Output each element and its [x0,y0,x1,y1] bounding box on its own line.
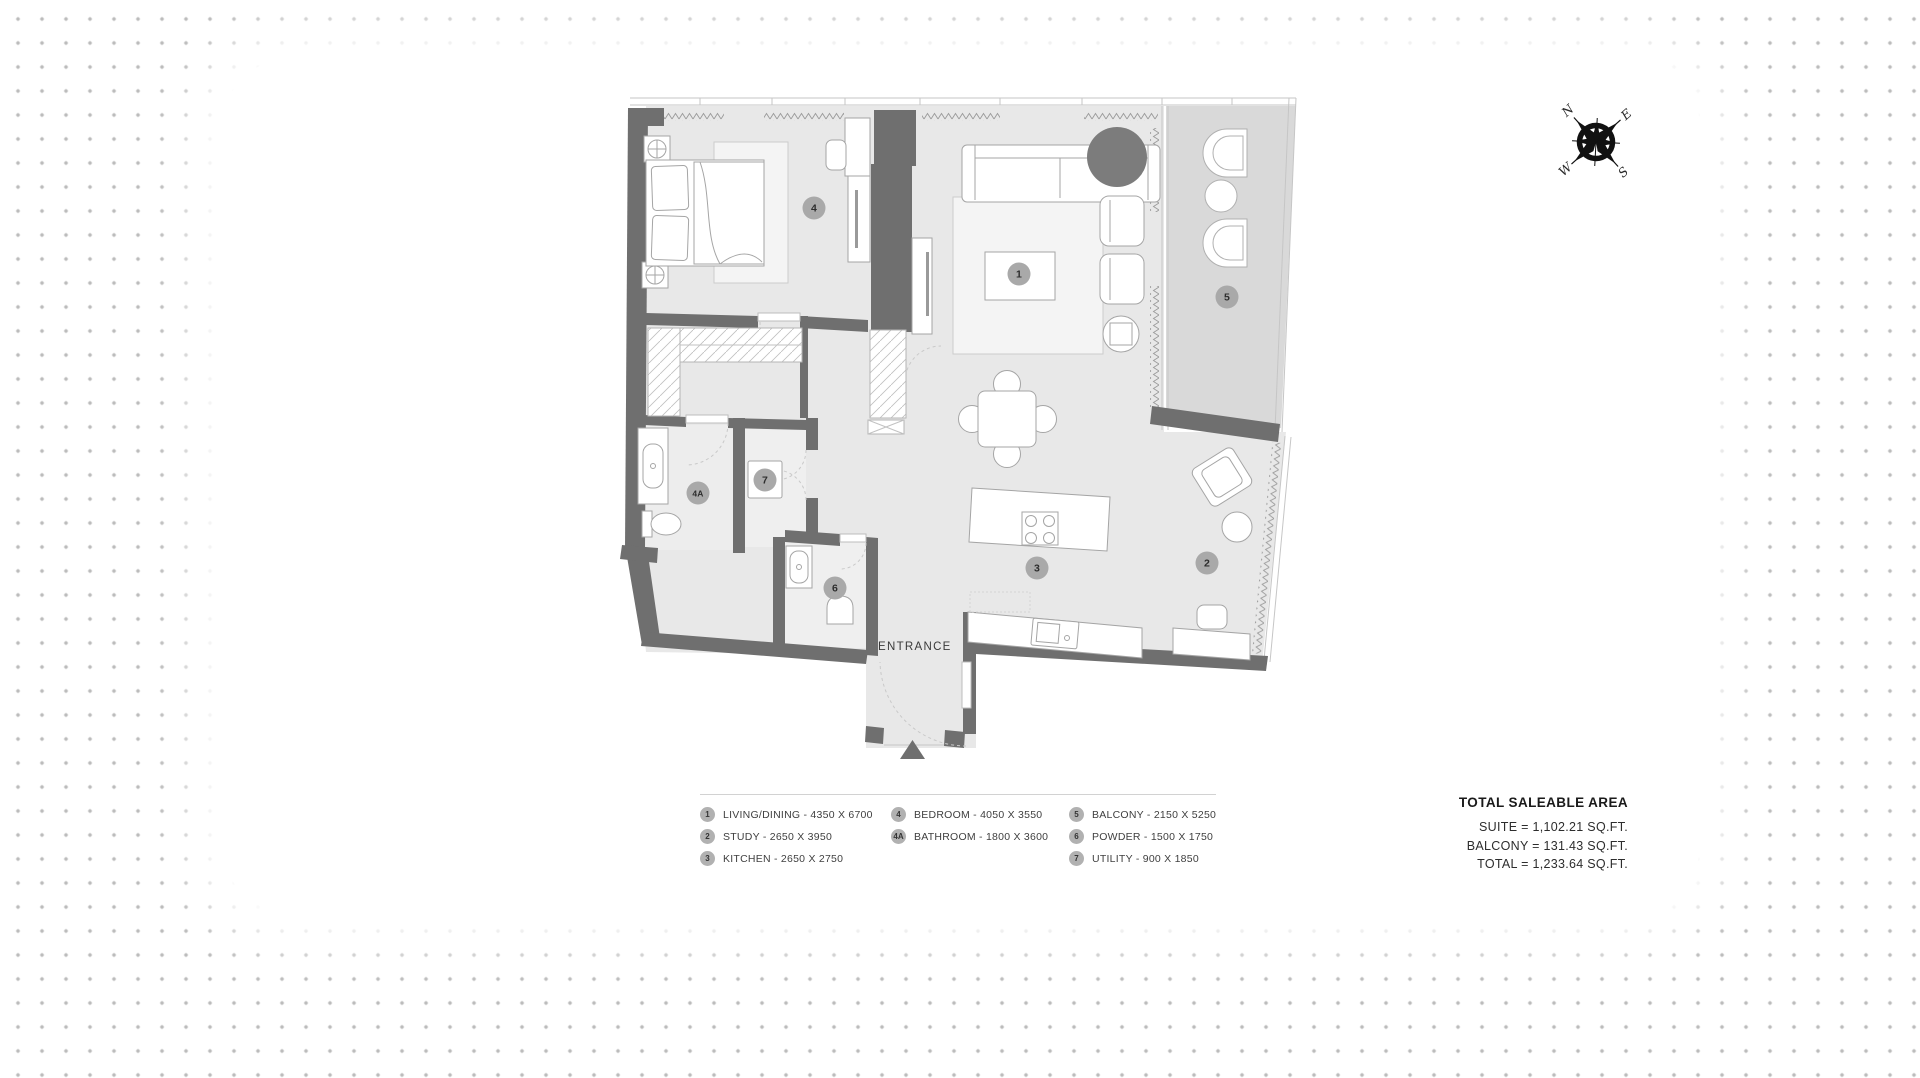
legend-badge: 2 [700,829,715,844]
total-area-summary: TOTAL SALEABLE AREA SUITE = 1,102.21 SQ.… [1459,795,1628,874]
legend-column-3: 5 BALCONY - 2150 X 5250 6 POWDER - 1500 … [1069,807,1216,866]
room-badge-bedroom: 4 [803,197,826,220]
legend-badge: 5 [1069,807,1084,822]
entrance-left-wall [866,537,878,656]
floor-plan-drawing [620,96,1310,786]
legend-item: 1 LIVING/DINING - 4350 X 6700 [700,807,891,822]
pillow [651,165,689,210]
pillow [651,215,689,260]
room-badge-study: 2 [1196,552,1219,575]
desk-chair [826,140,846,170]
bathroom-top-wall [644,415,686,427]
legend-label: KITCHEN - 2650 X 2750 [723,853,843,865]
powder-toilet [827,596,853,624]
balcony-area-line: BALCONY = 131.43 SQ.FT. [1459,837,1628,856]
legend-badge: 1 [700,807,715,822]
legend-badge: 3 [700,851,715,866]
total-area-title: TOTAL SALEABLE AREA [1459,795,1628,810]
corridor-pillar [874,110,916,166]
legend: 1 LIVING/DINING - 4350 X 6700 2 STUDY - … [700,794,1216,866]
compass-south-label: S [1615,164,1631,181]
legend-label: BALCONY - 2150 X 5250 [1092,809,1216,821]
study-round-table [1222,512,1252,542]
toilet-bowl [651,513,681,535]
compass-west-label: W [1555,158,1575,179]
legend-item: 4 BEDROOM - 4050 X 3550 [891,807,1069,822]
legend-label: STUDY - 2650 X 3950 [723,831,832,843]
living-furniture [953,127,1160,354]
dining-table [978,391,1036,447]
room-badge-bathroom: 4A [687,482,710,505]
console [845,118,870,176]
room-badge-living: 1 [1008,263,1031,286]
legend-badge: 6 [1069,829,1084,844]
legend-item: 6 POWDER - 1500 X 1750 [1069,829,1216,844]
legend-item: 7 UTILITY - 900 X 1850 [1069,851,1216,866]
compass-rose: N E S W [1544,90,1648,194]
legend-label: BATHROOM - 1800 X 3600 [914,831,1048,843]
legend-item: 5 BALCONY - 2150 X 5250 [1069,807,1216,822]
armchair [1100,196,1144,246]
bedroom-furniture [642,136,788,288]
legend-item: 2 STUDY - 2650 X 3950 [700,829,891,844]
armchair [1100,254,1144,304]
powder-left-wall [773,537,785,645]
legend-item: 4A BATHROOM - 1800 X 3600 [891,829,1069,844]
legend-column-1: 1 LIVING/DINING - 4350 X 6700 2 STUDY - … [700,807,891,866]
top-left-wall-stub [628,108,664,126]
legend-badge: 7 [1069,851,1084,866]
tv-unit-bedroom [848,176,870,262]
entrance-label: ENTRANCE [878,641,952,653]
legend-badge: 4A [891,829,906,844]
legend-badge: 4 [891,807,906,822]
room-badge-utility: 7 [754,469,777,492]
round-feature-table [1087,127,1147,187]
legend-item: 3 KITCHEN - 2650 X 2750 [700,851,891,866]
suite-area-line: SUITE = 1,102.21 SQ.FT. [1459,818,1628,837]
study-desk [1173,628,1250,660]
duvet [694,162,764,264]
bath-utility-divider [733,418,745,553]
legend-label: UTILITY - 900 X 1850 [1092,853,1199,865]
room-badge-kitchen: 3 [1026,557,1049,580]
study-chair [1197,605,1227,629]
legend-column-2: 4 BEDROOM - 4050 X 3550 4A BATHROOM - 18… [891,807,1069,866]
room-badge-powder: 6 [824,577,847,600]
legend-label: BEDROOM - 4050 X 3550 [914,809,1042,821]
legend-label: LIVING/DINING - 4350 X 6700 [723,809,873,821]
total-area-line: TOTAL = 1,233.64 SQ.FT. [1459,855,1628,874]
room-badge-balcony: 5 [1216,286,1239,309]
balcony-table [1205,180,1237,212]
legend-label: POWDER - 1500 X 1750 [1092,831,1213,843]
bath-bottom-wall [620,545,658,563]
